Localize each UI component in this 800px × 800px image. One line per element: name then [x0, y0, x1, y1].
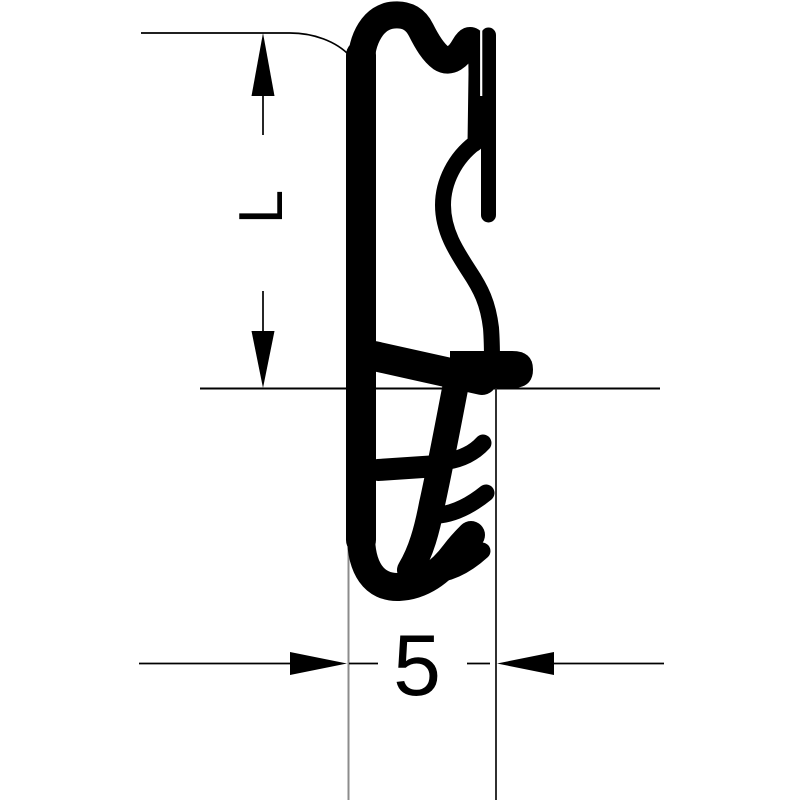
profile-shape — [361, 15, 533, 587]
dimension-arrow-right-pointing — [290, 652, 347, 675]
drawing-canvas: L 5 — [0, 0, 800, 800]
vertical-dimension-label: L — [227, 190, 296, 224]
dimension-arrow-left-pointing — [497, 652, 554, 675]
horizontal-dimension-label: 5 — [393, 618, 441, 714]
horizontal-dimension: 5 — [139, 618, 664, 714]
vertical-dimension: L — [227, 33, 296, 388]
top-datum-line — [141, 33, 350, 56]
seal-profile-technical-drawing: L 5 — [0, 0, 800, 800]
profile-top-arch — [361, 15, 473, 66]
profile-lip-limb — [472, 45, 476, 144]
profile-lower-rung — [378, 466, 438, 470]
dimension-arrow-down — [252, 331, 275, 388]
dimension-arrow-up — [252, 33, 275, 96]
